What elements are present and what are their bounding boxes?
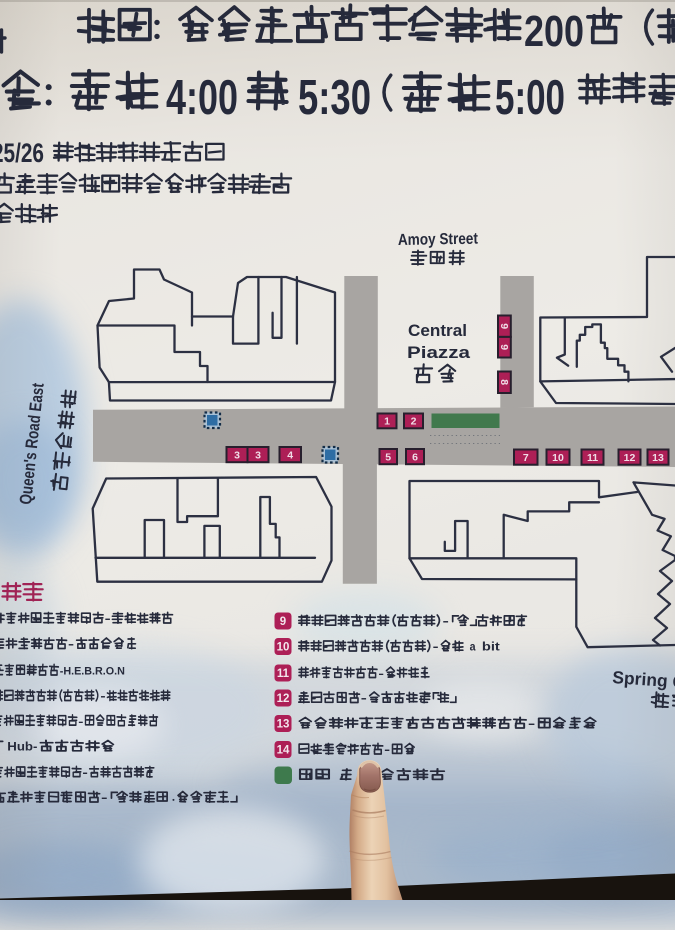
- svg-text:-: -: [101, 791, 108, 804]
- svg-text:4:00: 4:00: [166, 71, 238, 125]
- svg-text:13: 13: [277, 719, 290, 731]
- svg-text:8: 8: [498, 379, 510, 385]
- svg-text:Queen's Road East: Queen's Road East: [16, 382, 48, 506]
- svg-text:-: -: [528, 717, 535, 730]
- svg-text:Spring Ga: Spring Ga: [612, 667, 675, 693]
- svg-text:9: 9: [280, 616, 286, 628]
- svg-text:5: 5: [385, 451, 391, 463]
- svg-text:5:30: 5:30: [298, 71, 371, 125]
- svg-text:-: -: [82, 767, 88, 780]
- svg-text:1: 1: [384, 416, 390, 428]
- svg-text:-: -: [384, 744, 390, 756]
- svg-text:3: 3: [255, 449, 261, 461]
- svg-text:11: 11: [587, 452, 598, 464]
- svg-text:3: 3: [234, 449, 240, 461]
- svg-text:-: -: [68, 639, 74, 651]
- svg-text:13: 13: [652, 452, 664, 464]
- svg-text:6: 6: [412, 451, 418, 463]
- svg-text:-: -: [100, 691, 106, 703]
- svg-text:9: 9: [498, 344, 510, 350]
- svg-text:10: 10: [552, 452, 564, 464]
- svg-text:25/26: 25/26: [0, 138, 44, 168]
- svg-text:2: 2: [411, 416, 417, 428]
- svg-text:-: -: [433, 641, 439, 653]
- svg-text:-: -: [443, 616, 450, 628]
- svg-text:7: 7: [523, 452, 529, 464]
- svg-text:9: 9: [498, 323, 510, 329]
- svg-text:200: 200: [524, 7, 584, 56]
- svg-text:bit: bit: [482, 641, 500, 653]
- svg-text:Piazza: Piazza: [407, 343, 471, 362]
- svg-text:5:00: 5:00: [495, 71, 565, 125]
- svg-text:-: -: [361, 693, 367, 705]
- svg-text:Amoy Street: Amoy Street: [398, 231, 479, 249]
- svg-text:-H.E.B.R.O.N: -H.E.B.R.O.N: [60, 665, 125, 678]
- svg-text:12: 12: [277, 693, 290, 705]
- svg-text:14: 14: [277, 745, 290, 757]
- svg-text:a: a: [470, 641, 477, 653]
- svg-text:10: 10: [277, 642, 290, 654]
- svg-text:-: -: [105, 613, 111, 625]
- svg-text:Hub-: Hub-: [7, 740, 37, 753]
- svg-text:12: 12: [624, 452, 636, 464]
- svg-text:-: -: [378, 667, 384, 680]
- svg-text:11: 11: [277, 668, 290, 680]
- svg-text:4: 4: [287, 449, 293, 461]
- svg-text:-: -: [78, 716, 84, 728]
- svg-text:Central: Central: [408, 321, 467, 340]
